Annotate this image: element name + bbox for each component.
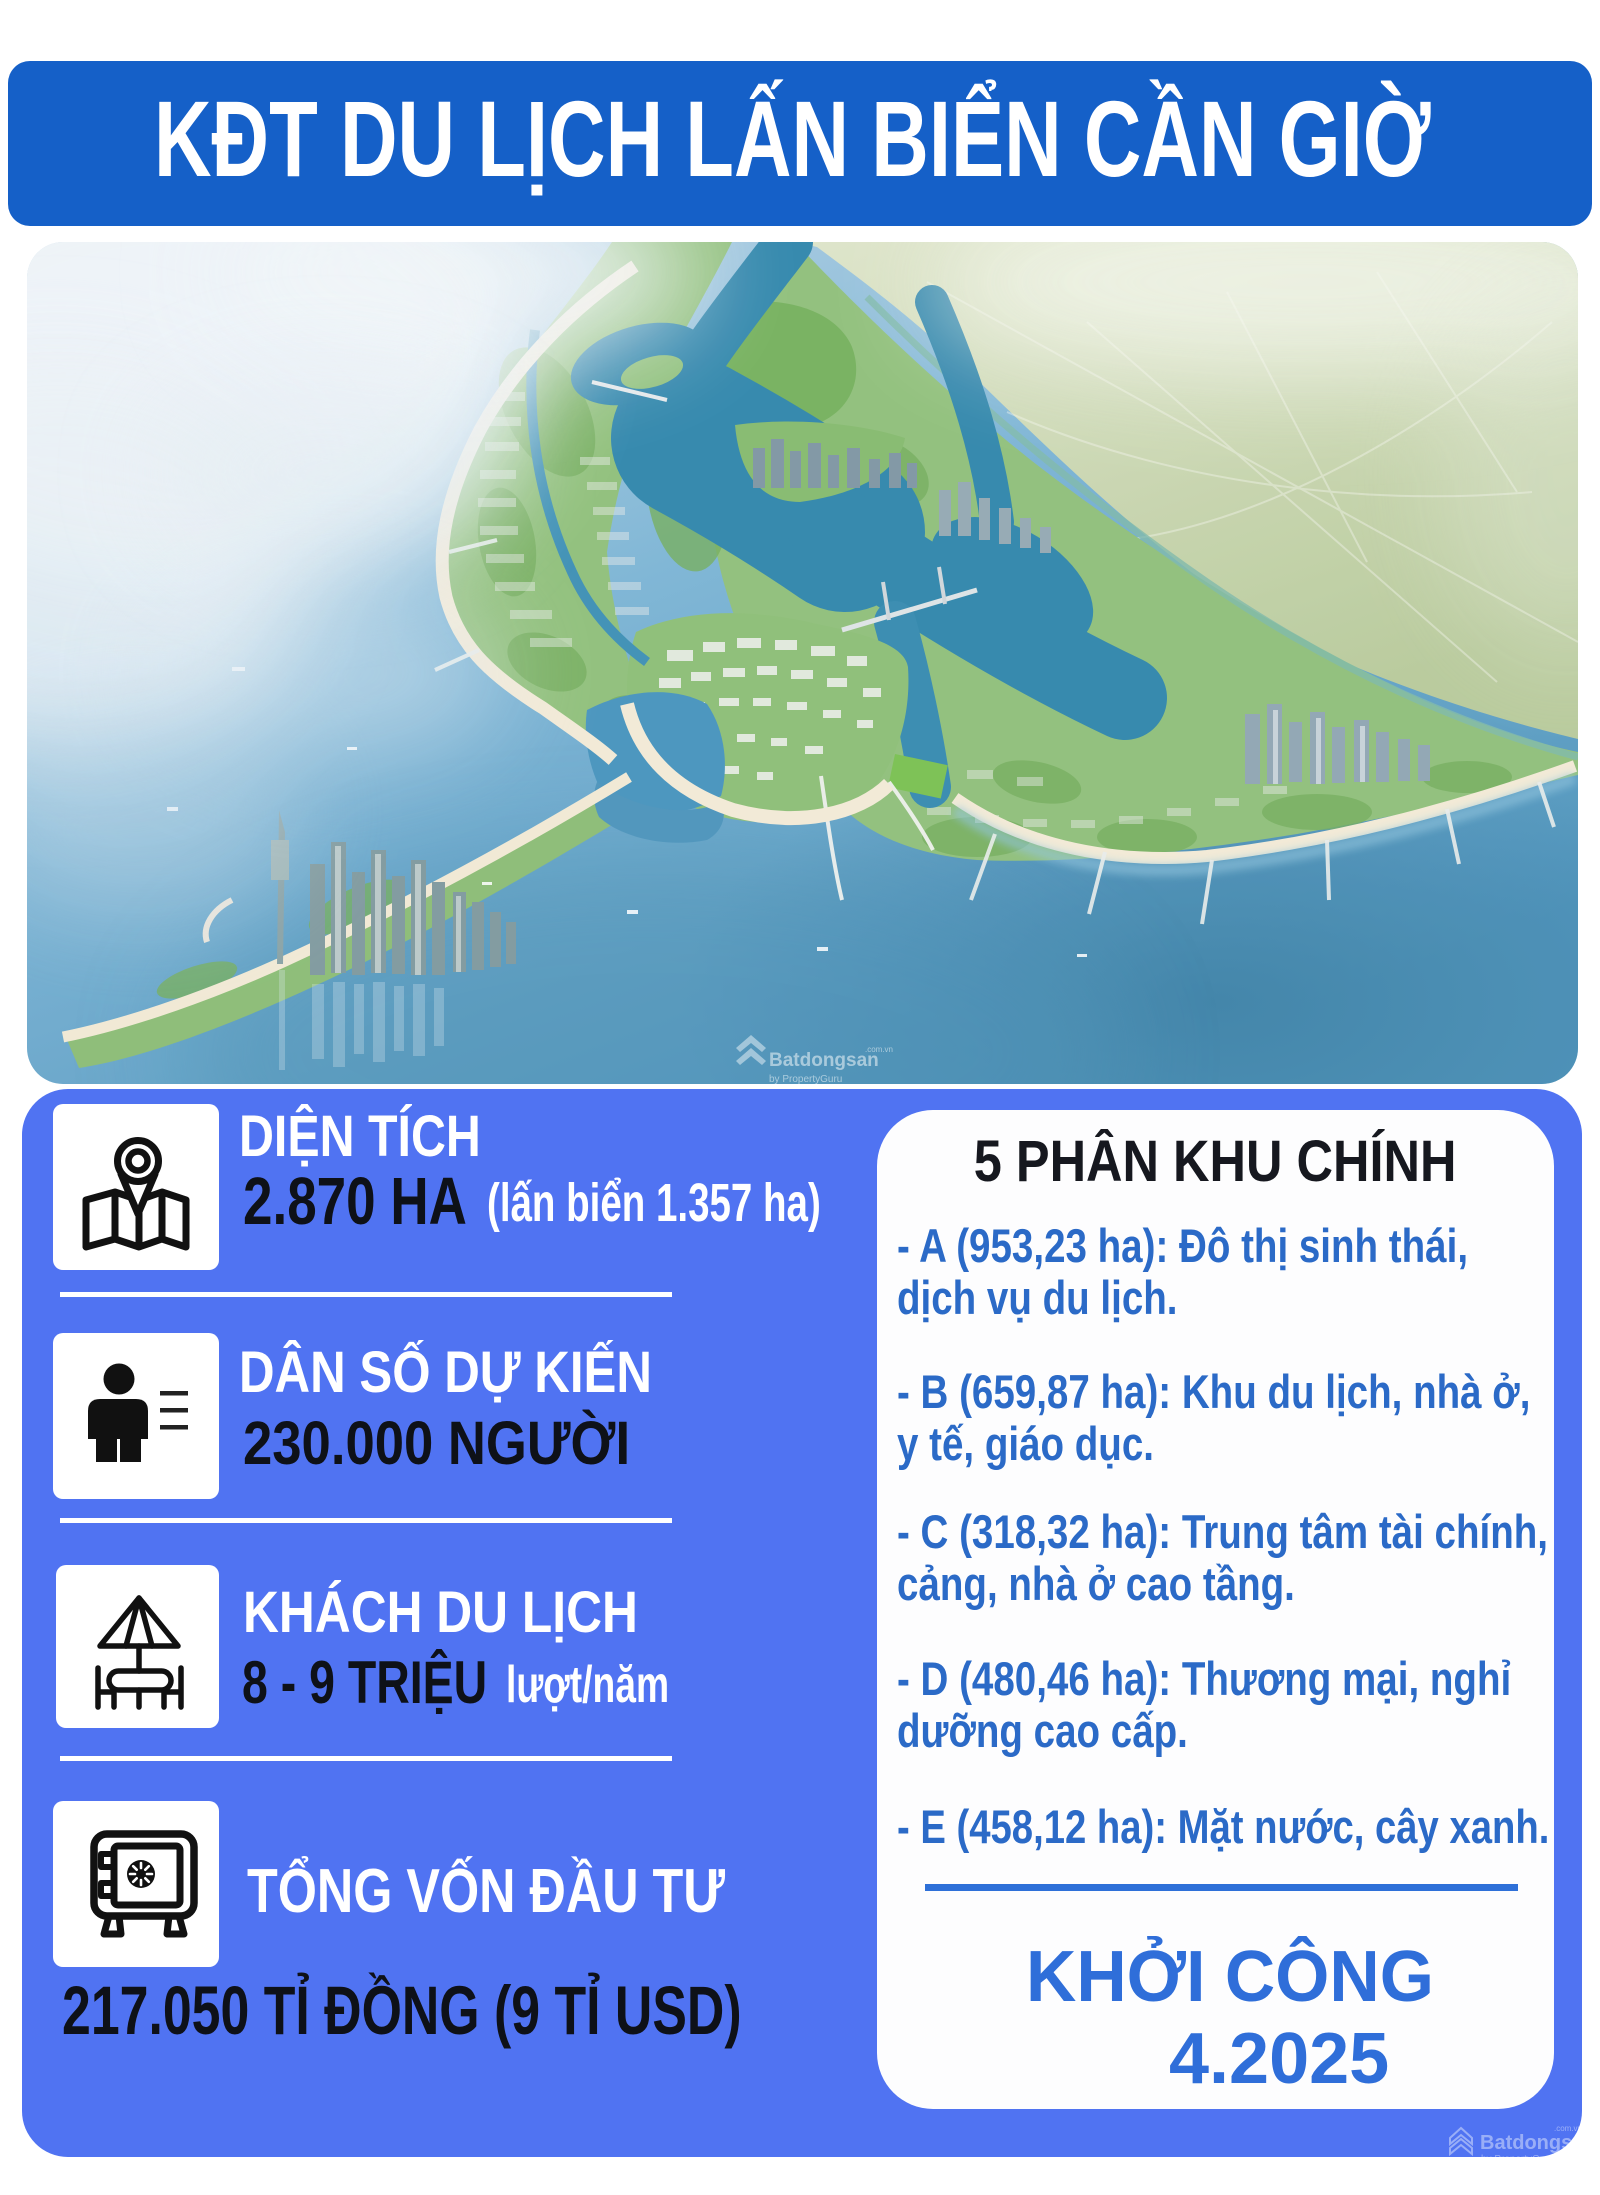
svg-text:Batdongsan: Batdongsan bbox=[769, 1050, 879, 1071]
svg-text:.com.vn: .com.vn bbox=[865, 1045, 893, 1054]
svg-text:by PropertyGuru: by PropertyGuru bbox=[769, 1074, 842, 1084]
